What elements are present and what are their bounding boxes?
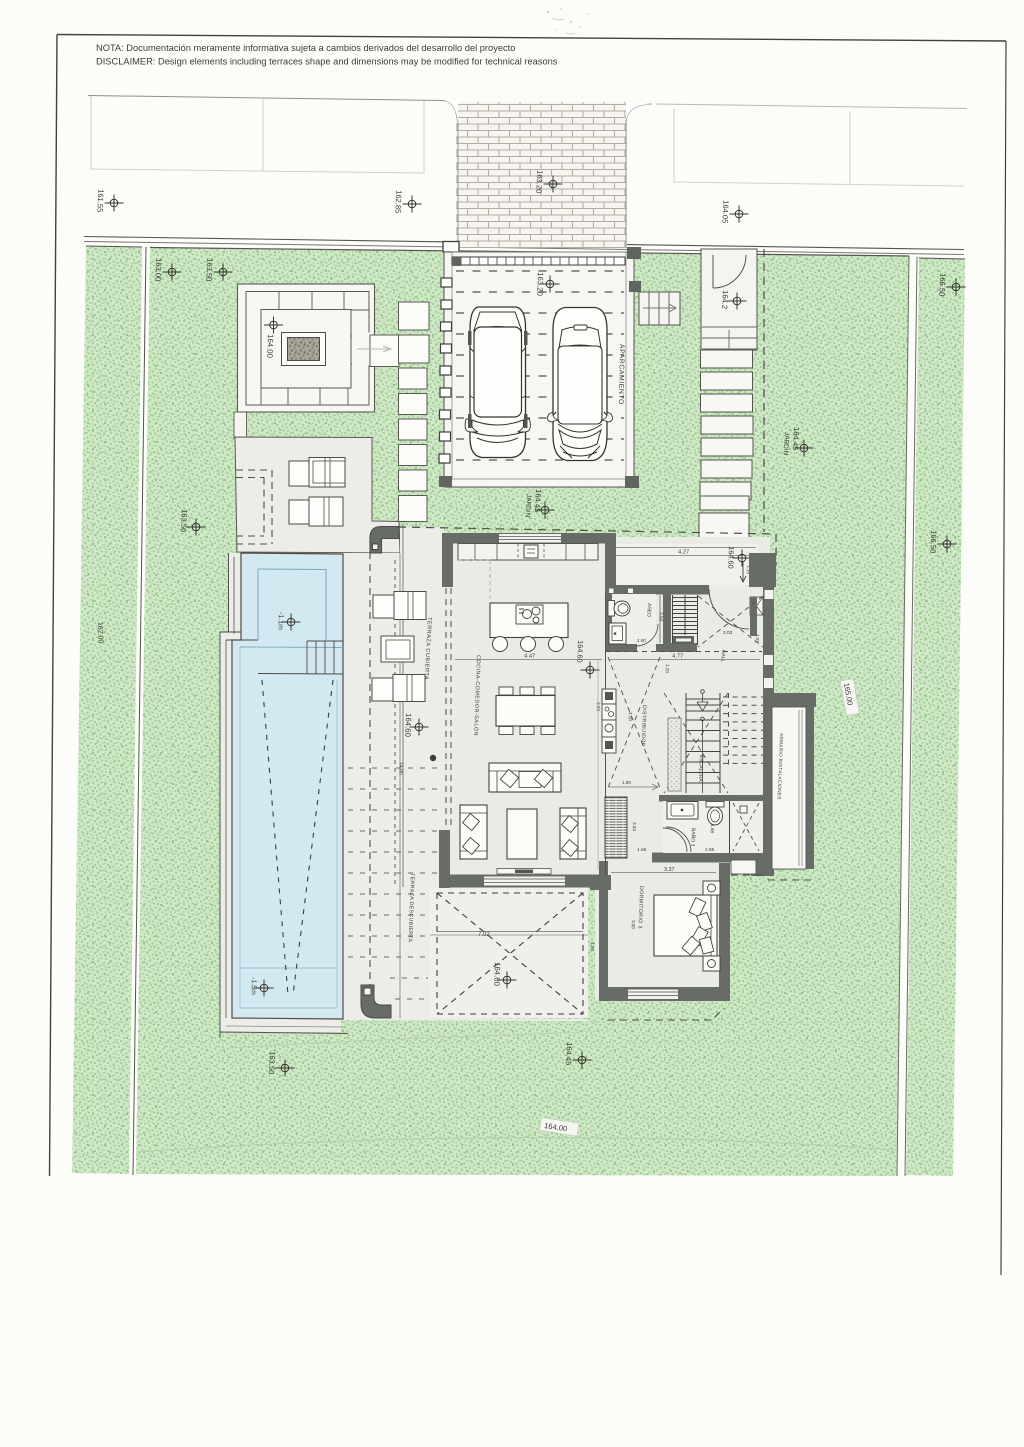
svg-text:163.50: 163.50 [204,258,214,282]
svg-text:-1.5m: -1.5m [249,977,257,995]
svg-text:3.37: 3.37 [664,867,675,873]
svg-text:3.84: 3.84 [632,822,637,832]
svg-text:14.80: 14.80 [398,762,404,775]
svg-text:APARCAMIENTO: APARCAMIENTO [617,344,625,405]
svg-text:BAÑO 3: BAÑO 3 [689,828,697,847]
svg-text:-1.1m: -1.1m [276,612,284,630]
svg-text:163.00: 163.00 [153,258,163,282]
svg-text:7.02: 7.02 [478,932,490,938]
svg-text:DISCLAIMER: Design elements in: DISCLAIMER: Design elements including te… [96,57,558,67]
svg-text:3.54: 3.54 [659,612,664,622]
svg-text:164.05: 164.05 [720,200,730,224]
svg-text:164.60: 164.60 [403,713,413,738]
svg-text:HALL: HALL [720,650,726,663]
svg-text:164.00: 164.00 [265,334,275,359]
svg-text:4.30: 4.30 [628,712,633,722]
svg-text:4.77: 4.77 [672,654,683,660]
svg-text:3.94: 3.94 [596,702,601,712]
svg-text:2.91: 2.91 [755,634,760,644]
svg-text:1.88: 1.88 [710,824,715,834]
svg-text:162.00: 162.00 [96,622,104,644]
svg-text:163.20: 163.20 [534,170,544,194]
svg-text:164.2: 164.2 [720,290,730,309]
svg-text:164.60: 164.60 [492,962,502,987]
svg-text:164.60: 164.60 [726,546,736,569]
svg-text:NOTA: Documentación meramente: NOTA: Documentación meramente informativ… [96,43,515,53]
svg-text:1.80: 1.80 [622,780,631,785]
svg-text:164.45: 164.45 [533,489,543,513]
svg-text:4.27: 4.27 [678,550,689,556]
svg-text:2.80: 2.80 [637,638,646,643]
svg-text:1.20: 1.20 [665,664,670,674]
svg-text:4.00: 4.00 [590,942,595,952]
svg-text:164.45: 164.45 [791,427,801,451]
svg-text:1.66: 1.66 [637,847,647,853]
svg-text:JARDIN: JARDIN [524,494,532,518]
svg-text:166.50: 166.50 [937,273,947,297]
svg-text:161.55: 161.55 [95,189,105,213]
svg-text:164.45: 164.45 [564,1042,574,1066]
svg-text:166.50: 166.50 [928,530,938,554]
svg-text:164.60: 164.60 [575,640,585,663]
svg-text:2.85: 2.85 [705,847,715,853]
svg-text:4.47: 4.47 [524,654,535,660]
svg-text:JARDIN: JARDIN [782,432,790,456]
svg-text:163.50: 163.50 [267,1051,277,1075]
svg-text:2.03: 2.03 [723,630,733,636]
svg-text:163.50: 163.50 [179,509,189,533]
svg-text:162.85: 162.85 [393,190,403,214]
svg-text:163.20: 163.20 [535,272,545,297]
svg-text:ASEO: ASEO [646,603,652,617]
svg-text:ESCALERA: ESCALERA [697,755,704,783]
svg-text:3.80: 3.80 [631,920,636,930]
